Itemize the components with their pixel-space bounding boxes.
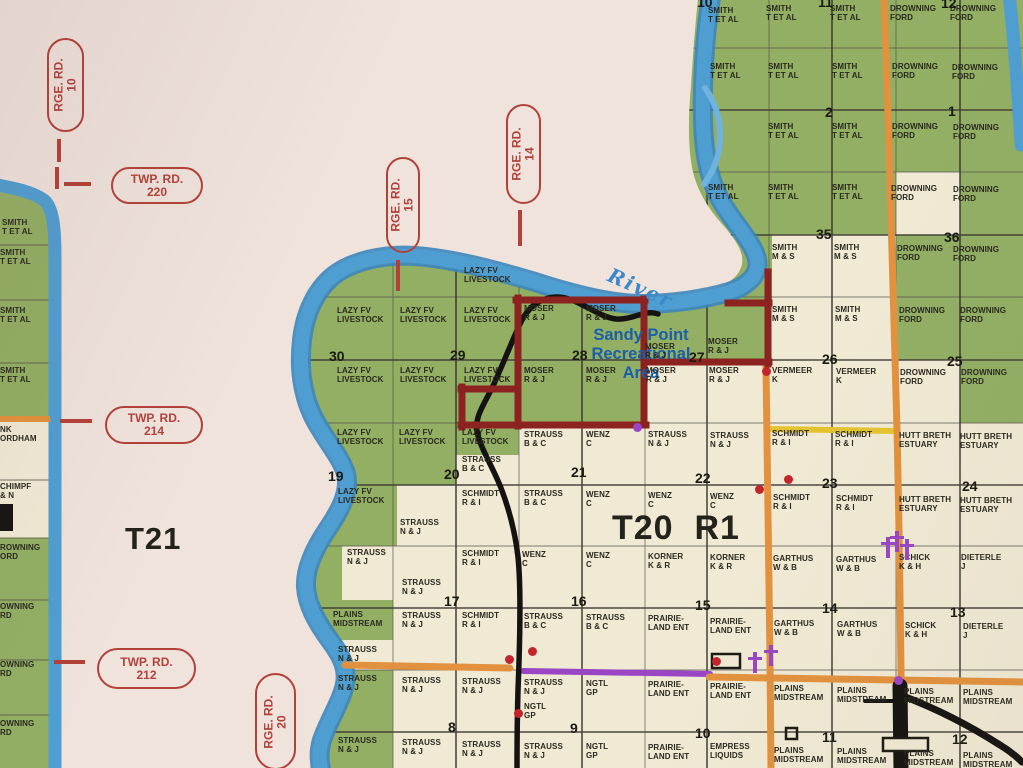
section-number: 15 bbox=[695, 598, 711, 612]
parcel-label: WENZ C bbox=[586, 490, 610, 508]
section-number: 9 bbox=[570, 721, 578, 735]
parcel-label: WENZ C bbox=[648, 491, 672, 509]
parcel-label: WENZ C bbox=[522, 550, 546, 568]
section-number: 10 bbox=[697, 0, 713, 9]
section-number: 12 bbox=[941, 0, 957, 10]
parcel-label: DIETERLE J bbox=[963, 622, 1003, 640]
parcel-label: DROWNING FORD bbox=[953, 185, 999, 203]
parcel-label: PRAIRIE- LAND ENT bbox=[648, 614, 689, 632]
parcel-label: SMITH M & S bbox=[835, 305, 860, 323]
parcel-label: SMITH T ET AL bbox=[768, 62, 799, 80]
section-number: 28 bbox=[572, 348, 588, 362]
parcel-label: OWNING RD bbox=[0, 719, 34, 737]
parcel-label: SCHMIDT R & I bbox=[462, 549, 499, 567]
parcel-label: STRAUSS N & J bbox=[338, 736, 377, 754]
parcel-label: SCHMIDT R & I bbox=[773, 493, 810, 511]
parcel-label: KORNER K & R bbox=[648, 552, 683, 570]
parcel-label: STRAUSS B & C bbox=[524, 430, 563, 448]
parcel-label: DROWNING FORD bbox=[892, 62, 938, 80]
parcel-label: SCHICK K & H bbox=[905, 621, 936, 639]
section-number: 1 bbox=[948, 104, 956, 118]
parcel-label: HUTT BRETH ESTUARY bbox=[899, 431, 951, 449]
parcel-label: PLAINS MIDSTREAM bbox=[774, 746, 823, 764]
cross-bar bbox=[748, 657, 762, 661]
parcel-label: SMITH T ET AL bbox=[832, 62, 863, 80]
section-number: 22 bbox=[695, 471, 711, 485]
parcel-label: LAZY FV LIVESTOCK bbox=[464, 266, 511, 284]
road-label-oval: RGE. RD. 20 bbox=[255, 673, 296, 768]
road-label-text: TWP. RD. 214 bbox=[128, 412, 180, 438]
sandy-point-line: Recreational bbox=[575, 345, 707, 364]
section-number: 20 bbox=[444, 467, 460, 481]
parcel-label: MOSER R & J bbox=[586, 366, 616, 384]
parcel-label: STRAUSS N & J bbox=[462, 740, 501, 758]
parcel-label: MOSER R & J bbox=[645, 342, 675, 360]
parcel-label: SCHMIDT R & I bbox=[772, 429, 809, 447]
section-number: 16 bbox=[571, 594, 587, 608]
parcel-label: CHIMPF & N bbox=[0, 482, 31, 500]
parcel-label: DROWNING FORD bbox=[953, 123, 999, 141]
parcel-label: STRAUSS N & J bbox=[524, 678, 563, 696]
cross-bar bbox=[764, 650, 778, 654]
parcel-label: NGTL GP bbox=[586, 742, 608, 760]
county-ownership-map-photo: T21 T20 R1 Sandy Point Recreational Area… bbox=[0, 0, 1023, 768]
well-site-red-dot bbox=[755, 485, 764, 494]
parcel-label: STRAUSS N & J bbox=[347, 548, 386, 566]
parcel-label: PRAIRIE- LAND ENT bbox=[648, 743, 689, 761]
parcel-label: EMPRESS LIQUIDS bbox=[710, 742, 750, 760]
parcel-label: GARTHUS W & B bbox=[773, 554, 813, 572]
road-dash bbox=[396, 260, 400, 291]
sandy-point-line: Sandy Point bbox=[575, 326, 707, 345]
parcel-label: SMITH T ET AL bbox=[0, 306, 31, 324]
road-dash bbox=[64, 182, 91, 186]
parcel-label: MOSER R & J bbox=[524, 304, 554, 322]
parcel-label: SMITH T ET AL bbox=[768, 122, 799, 140]
section-number: 35 bbox=[816, 227, 832, 241]
parcel-label: SMITH T ET AL bbox=[768, 183, 799, 201]
section-number: 23 bbox=[822, 476, 838, 490]
parcel-label: LAZY FV LIVESTOCK bbox=[337, 366, 384, 384]
section-number: 27 bbox=[689, 350, 705, 364]
parcel-label: PLAINS MIDSTREAM bbox=[963, 688, 1012, 706]
section-number: 14 bbox=[822, 601, 838, 615]
parcel-label: LAZY FV LIVESTOCK bbox=[464, 366, 511, 384]
parcel-label: SCHMIDT R & I bbox=[836, 494, 873, 512]
parcel-label: LAZY FV LIVESTOCK bbox=[337, 306, 384, 324]
parcel-label: STRAUSS B & C bbox=[524, 612, 563, 630]
road-dash bbox=[60, 419, 92, 423]
parcel-label: VERMEER K bbox=[836, 367, 876, 385]
parcel-label: PLAINS MIDSTREAM bbox=[837, 686, 886, 704]
parcel-label: DROWNING FORD bbox=[890, 4, 936, 22]
parcel-label: STRAUSS B & C bbox=[524, 489, 563, 507]
parcel-label: LAZY FV LIVESTOCK bbox=[464, 306, 511, 324]
well-site-red-dot bbox=[762, 367, 771, 376]
parcel-label: PRAIRIE- LAND ENT bbox=[710, 617, 751, 635]
road-label-oval: RGE. RD. 10 bbox=[47, 38, 84, 132]
parcel-label: STRAUSS B & C bbox=[586, 613, 625, 631]
road-label-text: RGE. RD. 20 bbox=[263, 695, 289, 748]
parcel-label: WENZ C bbox=[586, 430, 610, 448]
parcel-label: ROWNING ORD bbox=[0, 543, 40, 561]
parcel-label: NGTL GP bbox=[586, 679, 608, 697]
parcel-label: SMITH T ET AL bbox=[0, 366, 31, 384]
parcel-label: LAZY FV LIVESTOCK bbox=[338, 487, 385, 505]
well-site-red-dot bbox=[784, 475, 793, 484]
parcel-label: STRAUSS N & J bbox=[524, 742, 563, 760]
parcel-label: DROWNING FORD bbox=[952, 63, 998, 81]
road-label-oval: TWP. RD. 220 bbox=[111, 167, 203, 204]
parcel-label: MOSER R & J bbox=[586, 304, 616, 322]
road-dash bbox=[518, 210, 522, 246]
map-annotations: T21 T20 R1 Sandy Point Recreational Area… bbox=[0, 0, 1023, 768]
well-site-red-dot bbox=[514, 709, 523, 718]
cross-bar bbox=[769, 645, 773, 666]
parcel-label: PLAINS MIDSTREAM bbox=[837, 747, 886, 765]
parcel-label: GARTHUS W & B bbox=[836, 555, 876, 573]
parcel-label: SMITH T ET AL bbox=[708, 183, 739, 201]
section-number: 36 bbox=[944, 230, 960, 244]
parcel-label: PLAINS MIDSTREAM bbox=[774, 684, 823, 702]
parcel-label: HUTT BRETH ESTUARY bbox=[899, 495, 951, 513]
parcel-label: SMITH T ET AL bbox=[766, 4, 797, 22]
parcel-label: LAZY FV LIVESTOCK bbox=[337, 428, 384, 446]
parcel-label: WENZ C bbox=[710, 492, 734, 510]
parcel-label: NGTL GP bbox=[524, 702, 546, 720]
cemetery-cross-icon bbox=[748, 652, 762, 673]
section-number: 11 bbox=[822, 730, 837, 744]
parcel-label: SCHMIDT R & I bbox=[835, 430, 872, 448]
road-label-text: RGE. RD. 15 bbox=[390, 178, 416, 231]
road-label-oval: TWP. RD. 214 bbox=[105, 406, 203, 444]
section-number: 2 bbox=[825, 105, 833, 119]
parcel-label: LAZY FV LIVESTOCK bbox=[400, 366, 447, 384]
parcel-label: DROWNING FORD bbox=[961, 368, 1007, 386]
township-label-t20-r1: T20 R1 bbox=[612, 509, 740, 548]
section-number: 12 bbox=[952, 732, 968, 746]
section-number: 13 bbox=[950, 605, 966, 619]
road-orange-tick bbox=[0, 416, 50, 422]
parcel-label: STRAUSS N & J bbox=[338, 645, 377, 663]
cross-bar bbox=[900, 544, 914, 548]
section-number: 8 bbox=[448, 720, 456, 734]
road-label-oval: RGE. RD. 15 bbox=[386, 157, 420, 253]
cross-bar bbox=[886, 537, 890, 558]
parcel-label: HUTT BRETH ESTUARY bbox=[960, 432, 1012, 450]
parcel-label: PRAIRIE- LAND ENT bbox=[710, 682, 751, 700]
section-number: 24 bbox=[962, 479, 978, 493]
parcel-label: SCHMIDT R & I bbox=[462, 489, 499, 507]
parcel-label: OWNING RD bbox=[0, 602, 34, 620]
section-number: 21 bbox=[571, 465, 587, 479]
parcel-label: DROWNING FORD bbox=[892, 122, 938, 140]
parcel-label: STRAUSS N & J bbox=[648, 430, 687, 448]
purple-dot-marker bbox=[894, 676, 903, 685]
parcel-label: DIETERLE J bbox=[961, 553, 1001, 571]
parcel-label: SMITH M & S bbox=[772, 243, 797, 261]
parcel-label: SCHMIDT R & I bbox=[462, 611, 499, 629]
parcel-label: GARTHUS W & B bbox=[774, 619, 814, 637]
parcel-label: PLAINS MIDSTREAM bbox=[333, 610, 382, 628]
parcel-label: STRAUSS N & J bbox=[400, 518, 439, 536]
parcel-label: SMITH M & S bbox=[834, 243, 859, 261]
parcel-label: SMITH T ET AL bbox=[832, 183, 863, 201]
parcel-label: LAZY FV LIVESTOCK bbox=[399, 428, 446, 446]
parcel-label: OWNING RD bbox=[0, 660, 34, 678]
well-site-red-dot bbox=[528, 647, 537, 656]
parcel-label: GARTHUS W & B bbox=[837, 620, 877, 638]
parcel-label: DROWNING FORD bbox=[891, 184, 937, 202]
section-number: 10 bbox=[695, 726, 711, 740]
parcel-label: LAZY FV LIVESTOCK bbox=[400, 306, 447, 324]
section-number: 25 bbox=[947, 354, 963, 368]
parcel-label: DROWNING FORD bbox=[953, 245, 999, 263]
parcel-label: MOSER R & J bbox=[524, 366, 554, 384]
section-number: 11 bbox=[818, 0, 833, 9]
parcel-label: STRAUSS N & J bbox=[402, 676, 441, 694]
road-label-text: RGE. RD. 14 bbox=[511, 127, 537, 180]
section-number: 17 bbox=[444, 594, 460, 608]
parcel-label: MOSER R & J bbox=[708, 337, 738, 355]
parcel-label: STRAUSS N & J bbox=[402, 738, 441, 756]
parcel-label: STRAUSS N & J bbox=[402, 578, 441, 596]
parcel-label: STRAUSS N & J bbox=[710, 431, 749, 449]
parcel-label: PRAIRIE- LAND ENT bbox=[648, 680, 689, 698]
parcel-label: SMITH T ET AL bbox=[2, 218, 33, 236]
parcel-label: SMITH T ET AL bbox=[710, 62, 741, 80]
parcel-label: STRAUSS N & J bbox=[402, 611, 441, 629]
purple-dot-marker bbox=[633, 423, 642, 432]
parcel-label: NK ORDHAM bbox=[0, 425, 37, 443]
township-label-t21: T21 bbox=[125, 521, 181, 557]
road-label-oval: RGE. RD. 14 bbox=[506, 104, 541, 204]
parcel-label: KORNER K & R bbox=[710, 553, 745, 571]
parcel-label: MOSER R & J bbox=[646, 366, 676, 384]
section-number: 29 bbox=[450, 348, 466, 362]
road-label-text: TWP. RD. 212 bbox=[120, 656, 172, 682]
road-label-text: TWP. RD. 220 bbox=[131, 173, 183, 199]
section-number: 26 bbox=[822, 352, 838, 366]
road-dash bbox=[55, 167, 59, 189]
well-site-red-dot bbox=[712, 657, 721, 666]
parcel-label: DROWNING FORD bbox=[960, 306, 1006, 324]
parcel-label: SMITH T ET AL bbox=[0, 248, 31, 266]
parcel-label: DROWNING FORD bbox=[897, 244, 943, 262]
road-label-text: RGE. RD. 10 bbox=[53, 58, 79, 111]
road-dash bbox=[54, 660, 85, 664]
parcel-label: LAZY FV LIVESTOCK bbox=[462, 428, 509, 446]
road-label-oval: TWP. RD. 212 bbox=[97, 648, 196, 689]
parcel-label: STRAUSS N & J bbox=[462, 677, 501, 695]
parcel-label: STRAUSS N & J bbox=[338, 674, 377, 692]
parcel-label: HUTT BRETH ESTUARY bbox=[960, 496, 1012, 514]
parcel-label: SMITH T ET AL bbox=[832, 122, 863, 140]
parcel-label: STRAUSS B & C bbox=[462, 455, 501, 473]
parcel-label: WENZ C bbox=[586, 551, 610, 569]
parcel-label: PLAINS MIDSTREAM bbox=[963, 751, 1012, 768]
cemetery-cross-icon bbox=[900, 539, 914, 560]
cemetery-cross-icon bbox=[764, 645, 778, 666]
parcel-label: SMITH M & S bbox=[772, 305, 797, 323]
parcel-label: DROWNING FORD bbox=[900, 368, 946, 386]
parcel-label: PLAINS MIDSTREAM bbox=[904, 749, 953, 767]
parcel-label: VERMEER K bbox=[772, 366, 812, 384]
section-number: 19 bbox=[328, 469, 344, 483]
parcel-label: SMITH T ET AL bbox=[830, 4, 861, 22]
cross-bar bbox=[905, 539, 909, 560]
parcel-label: DROWNING FORD bbox=[899, 306, 945, 324]
parcel-label: MOSER R & J bbox=[709, 366, 739, 384]
section-number: 30 bbox=[329, 349, 345, 363]
well-site-red-dot bbox=[505, 655, 514, 664]
cross-bar bbox=[753, 652, 757, 673]
road-dash bbox=[57, 139, 61, 162]
cross-bar bbox=[895, 531, 899, 552]
parcel-label: PLAINS MIDSTREAM bbox=[904, 687, 953, 705]
